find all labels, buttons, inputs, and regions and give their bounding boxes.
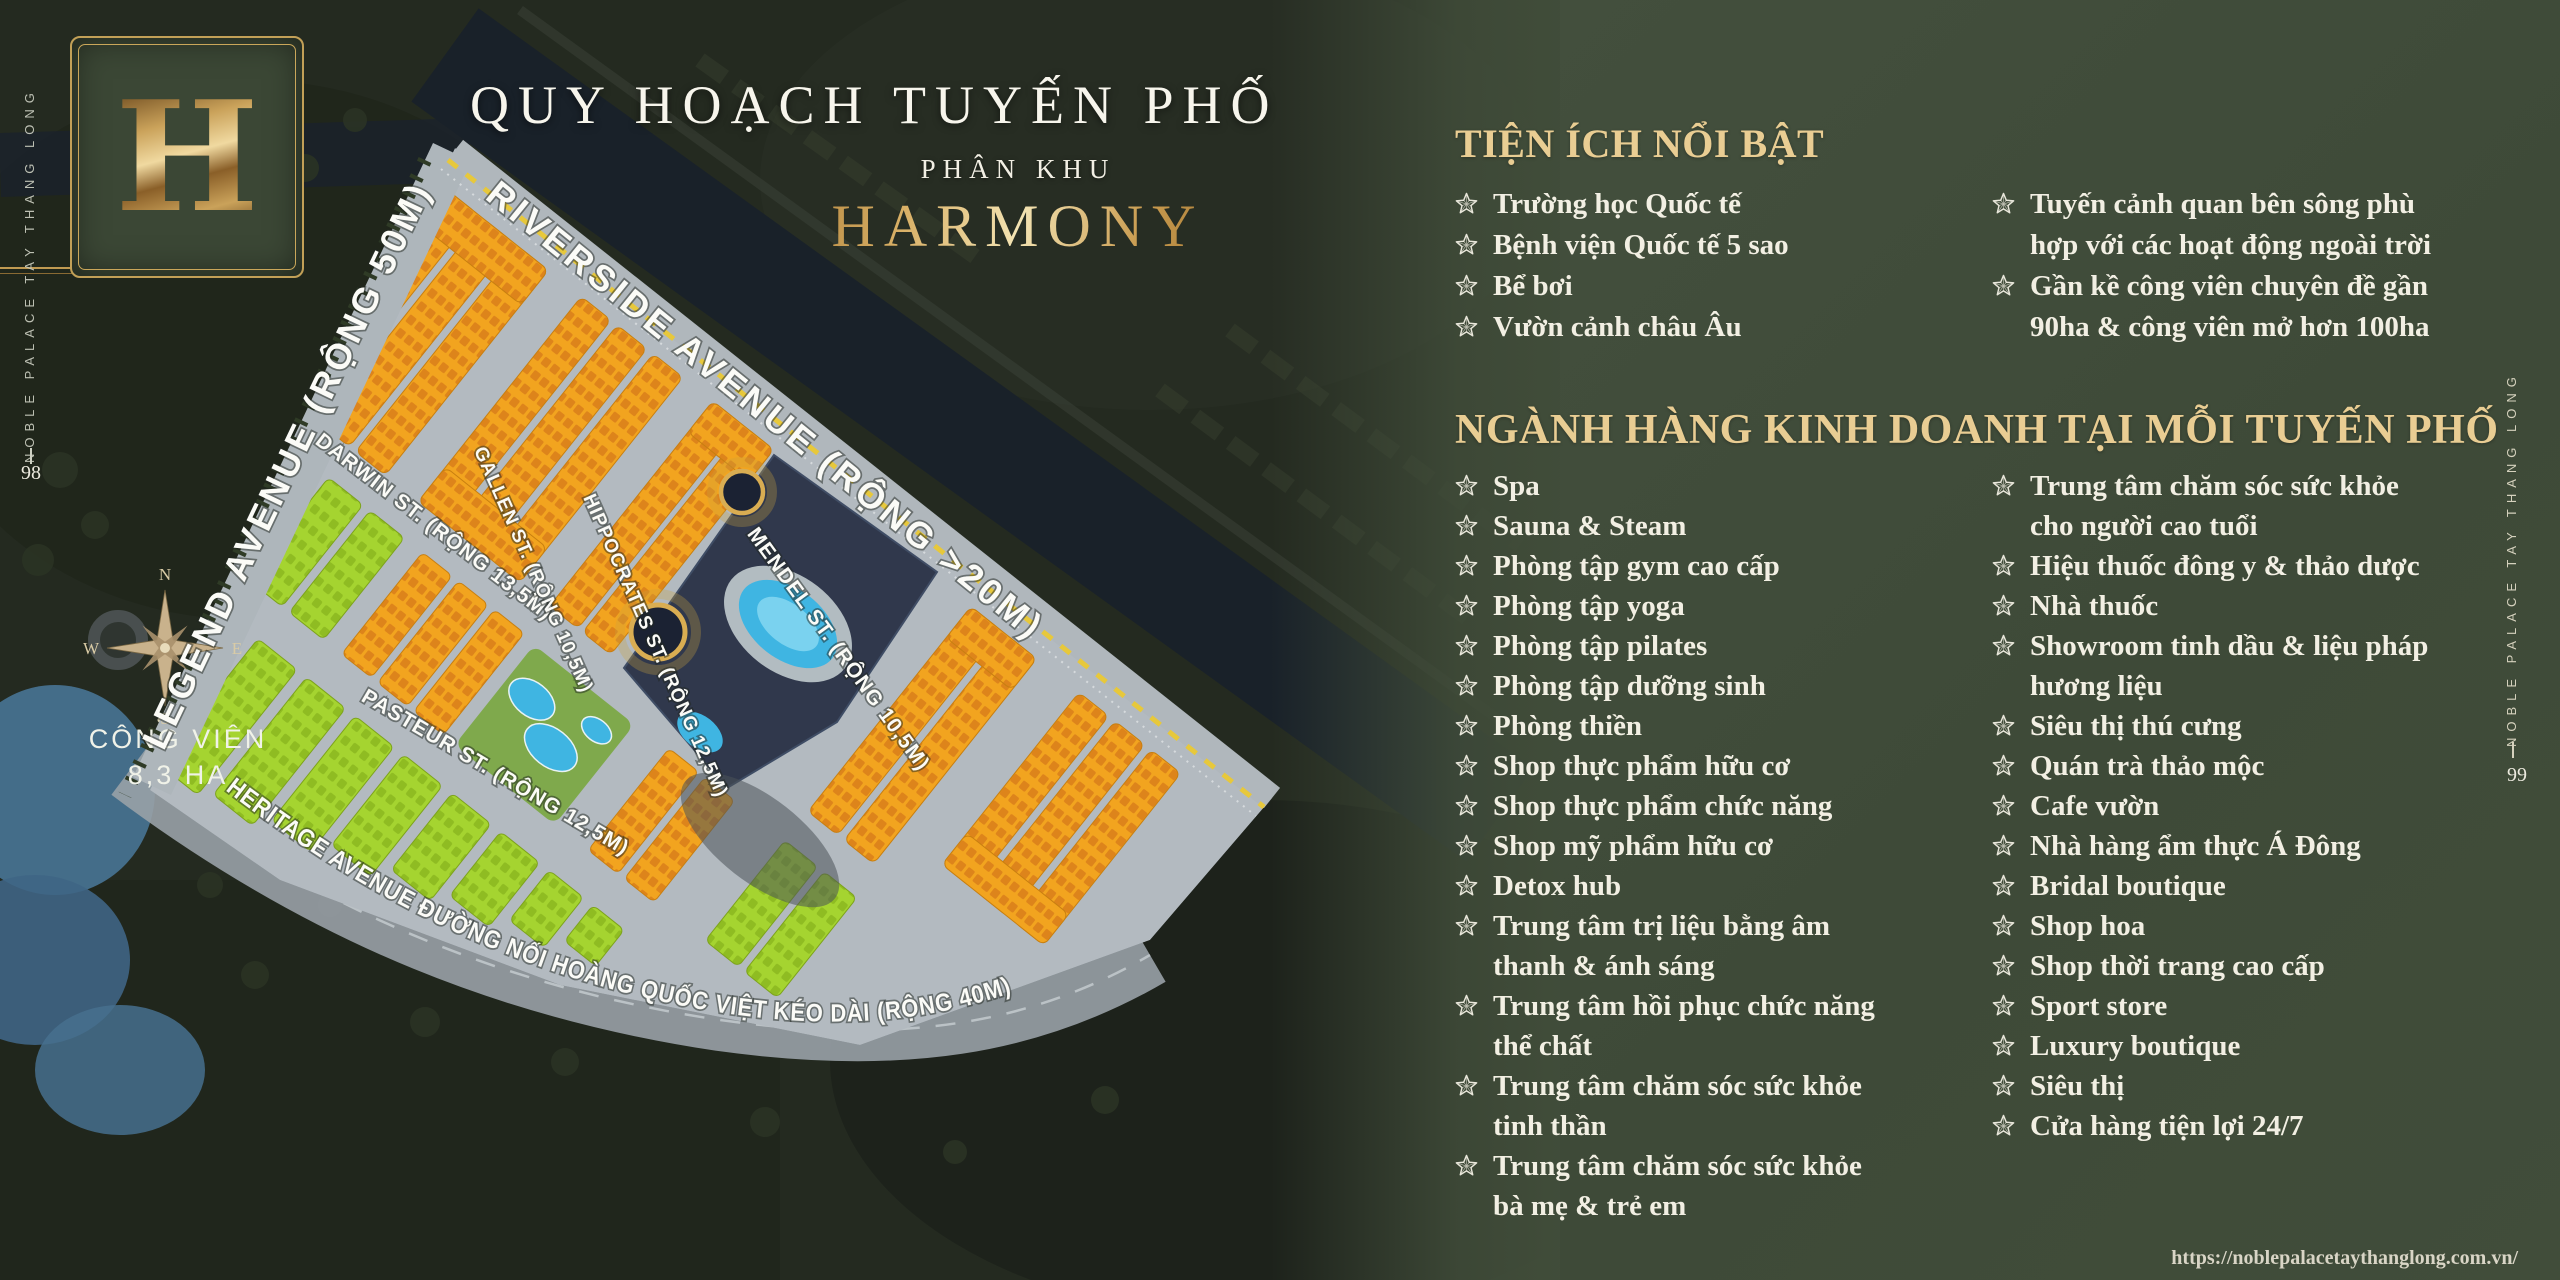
star-icon [1992, 994, 2015, 1017]
star-icon [1455, 834, 1478, 857]
gold-divider-line [0, 267, 74, 274]
page-subtitle: PHÂN KHU [868, 154, 1168, 185]
list-item-label: Trung tâm chăm sóc sức khỏe [1493, 1146, 1862, 1186]
business-list-col1: Spa Sauna & Steam Phòng tập gym cao cấp … [1455, 466, 1992, 1226]
star-icon [1992, 474, 2015, 497]
star-icon [1455, 754, 1478, 777]
list-item-label: Detox hub [1493, 866, 1621, 906]
star-icon [1992, 1074, 2015, 1097]
star-icon [1455, 192, 1478, 215]
list-item: Detox hub [1455, 866, 1992, 906]
star-icon [1992, 914, 2015, 937]
list-item-line: bà mẹ & trẻ em [1493, 1186, 1992, 1226]
star-icon [1455, 794, 1478, 817]
list-item-label: Cafe vườn [2030, 786, 2159, 826]
list-item-line: cho người cao tuổi [2030, 506, 2560, 546]
list-item: Trung tâm chăm sóc sức khỏe cho người ca… [1992, 466, 2560, 546]
list-item-line: thanh & ánh sáng [1493, 946, 1992, 986]
page-title: QUY HOẠCH TUYẾN PHỐ [470, 74, 1230, 136]
list-item-label: Nhà hàng ẩm thực Á Đông [2030, 826, 2361, 866]
list-item-label: Bệnh viện Quốc tế 5 sao [1493, 225, 1789, 266]
list-item-label: Siêu thị thú cưng [2030, 706, 2242, 746]
website-url: https://noblepalacetaythanglong.com.vn/ [2171, 1247, 2518, 1270]
star-icon [1455, 914, 1478, 937]
star-icon [1455, 474, 1478, 497]
list-item: Vườn cảnh châu Âu [1455, 307, 1992, 348]
list-item: Phòng thiền [1455, 706, 1992, 746]
list-item: Nhà hàng ẩm thực Á Đông [1992, 826, 2560, 866]
list-item: Nhà thuốc [1992, 586, 2560, 626]
list-item-label: Cửa hàng tiện lợi 24/7 [2030, 1106, 2304, 1146]
star-icon [1455, 634, 1478, 657]
list-item: Cafe vườn [1992, 786, 2560, 826]
star-icon [1992, 594, 2015, 617]
harmony-logo: H [70, 36, 304, 278]
list-item-label: Shop hoa [2030, 906, 2145, 946]
star-icon [1455, 874, 1478, 897]
star-icon [1992, 1034, 2015, 1057]
star-icon [1992, 834, 2015, 857]
list-item-label: Trung tâm hồi phục chức năng [1493, 986, 1875, 1026]
list-item: Tuyến cảnh quan bên sông phù hợp với các… [1992, 184, 2557, 266]
star-icon [1992, 874, 2015, 897]
logo-letter: H [115, 81, 259, 233]
page-number-right: 99 [2500, 764, 2534, 787]
list-item: Trung tâm hồi phục chức năng thể chất [1455, 986, 1992, 1066]
star-icon [1455, 714, 1478, 737]
star-icon [1992, 754, 2015, 777]
list-item: Bể bơi [1455, 266, 1992, 307]
list-item: Trường học Quốc tế [1455, 184, 1992, 225]
list-item-label: Phòng tập yoga [1493, 586, 1685, 626]
star-icon [1992, 192, 2015, 215]
list-item: Trung tâm chăm sóc sức khỏe tinh thần [1455, 1066, 1992, 1146]
compass-n: N [159, 565, 171, 584]
list-item: Phòng tập pilates [1455, 626, 1992, 666]
rail-tick-right [2512, 742, 2514, 758]
list-item-label: Trung tâm chăm sóc sức khỏe [1493, 1066, 1862, 1106]
list-item-line: thể chất [1493, 1026, 1992, 1066]
star-icon [1455, 1074, 1478, 1097]
list-item: Luxury boutique [1992, 1026, 2560, 1066]
star-icon [1455, 554, 1478, 577]
star-icon [1455, 233, 1478, 256]
star-icon [1992, 1114, 2015, 1137]
star-icon [1455, 514, 1478, 537]
list-item-label: Phòng thiền [1493, 706, 1642, 746]
list-item-label: Shop thực phẩm chức năng [1493, 786, 1832, 826]
star-icon [1455, 315, 1478, 338]
list-item-label: Siêu thị [2030, 1066, 2124, 1106]
list-item: Trung tâm trị liệu bằng âm thanh & ánh s… [1455, 906, 1992, 986]
list-item-label: Phòng tập pilates [1493, 626, 1707, 666]
star-icon [1992, 634, 2015, 657]
list-item-label: Bể bơi [1493, 266, 1573, 307]
list-item: Shop hoa [1992, 906, 2560, 946]
star-icon [1992, 274, 2015, 297]
list-item: Phòng tập gym cao cấp [1455, 546, 1992, 586]
list-item-label: Tuyến cảnh quan bên sông phù [2030, 184, 2415, 225]
list-item: Cửa hàng tiện lợi 24/7 [1992, 1106, 2560, 1146]
amenities-list-col2: Tuyến cảnh quan bên sông phù hợp với các… [1992, 184, 2557, 348]
list-item-label: Quán trà thảo mộc [2030, 746, 2264, 786]
list-item-label: Phòng tập dưỡng sinh [1493, 666, 1766, 706]
logo-frame: H [78, 44, 296, 270]
list-item: Spa [1455, 466, 1992, 506]
compass-w: W [83, 639, 100, 658]
list-item-label: Shop thời trang cao cấp [2030, 946, 2325, 986]
amenities-columns: Trường học Quốc tế Bệnh viện Quốc tế 5 s… [1455, 184, 2557, 348]
list-item-label: Sauna & Steam [1493, 506, 1686, 546]
zone-name: HARMONY [760, 192, 1276, 261]
side-label-left: NOBLE PALACE TAY THANG LONG [22, 268, 37, 463]
list-item: Phòng tập dưỡng sinh [1455, 666, 1992, 706]
list-item-label: Shop mỹ phẩm hữu cơ [1493, 826, 1773, 866]
amenities-header: TIỆN ÍCH NỔI BẬT [1455, 120, 1824, 167]
star-icon [1992, 794, 2015, 817]
list-item-line: hợp với các hoạt động ngoài trời [2030, 225, 2557, 266]
list-item-line: hương liệu [2030, 666, 2560, 706]
list-item: Shop thực phẩm chức năng [1455, 786, 1992, 826]
business-list-col2: Trung tâm chăm sóc sức khỏe cho người ca… [1992, 466, 2560, 1146]
star-icon [1455, 1154, 1478, 1177]
brochure-page: N E S W CÔNG VIÊN 8,3 HA HERITAGE AVENUE… [0, 0, 2560, 1280]
star-icon [1992, 954, 2015, 977]
list-item: Siêu thị thú cưng [1992, 706, 2560, 746]
list-item: Shop thực phẩm hữu cơ [1455, 746, 1992, 786]
list-item: Bridal boutique [1992, 866, 2560, 906]
list-item-line: 90ha & công viên mở hơn 100ha [2030, 307, 2557, 348]
list-item-label: Nhà thuốc [2030, 586, 2158, 626]
list-item-line: tinh thần [1493, 1106, 1992, 1146]
star-icon [1992, 714, 2015, 737]
list-item-label: Hiệu thuốc đông y & thảo dược [2030, 546, 2420, 586]
star-icon [1455, 994, 1478, 1017]
list-item: Showroom tinh dầu & liệu pháp hương liệu [1992, 626, 2560, 706]
star-icon [1455, 274, 1478, 297]
compass-e: E [232, 639, 242, 658]
business-columns: Spa Sauna & Steam Phòng tập gym cao cấp … [1455, 466, 2560, 1226]
list-item-label: Gần kề công viên chuyên đề gần [2030, 266, 2428, 307]
list-item: Shop thời trang cao cấp [1992, 946, 2560, 986]
list-item-label: Bridal boutique [2030, 866, 2226, 906]
star-icon [1455, 594, 1478, 617]
list-item-label: Showroom tinh dầu & liệu pháp [2030, 626, 2428, 666]
list-item: Quán trà thảo mộc [1992, 746, 2560, 786]
list-item: Bệnh viện Quốc tế 5 sao [1455, 225, 1992, 266]
list-item-label: Sport store [2030, 986, 2167, 1026]
list-item-label: Spa [1493, 466, 1540, 506]
side-label-right: NOBLE PALACE TAY THANG LONG [2504, 462, 2519, 747]
list-item-label: Trung tâm chăm sóc sức khỏe [2030, 466, 2399, 506]
list-item: Gần kề công viên chuyên đề gần 90ha & cô… [1992, 266, 2557, 348]
list-item: Phòng tập yoga [1455, 586, 1992, 626]
star-icon [1455, 674, 1478, 697]
list-item: Shop mỹ phẩm hữu cơ [1455, 826, 1992, 866]
list-item-label: Trung tâm trị liệu bằng âm [1493, 906, 1830, 946]
business-header: NGÀNH HÀNG KINH DOANH TẠI MỖI TUYẾN PHỐ [1455, 406, 2499, 454]
list-item: Sport store [1992, 986, 2560, 1026]
list-item-label: Luxury boutique [2030, 1026, 2240, 1066]
amenities-list-col1: Trường học Quốc tế Bệnh viện Quốc tế 5 s… [1455, 184, 1992, 348]
list-item: Siêu thị [1992, 1066, 2560, 1106]
list-item: Trung tâm chăm sóc sức khỏe bà mẹ & trẻ … [1455, 1146, 1992, 1226]
star-icon [1992, 554, 2015, 577]
page-number-left: 98 [16, 462, 46, 485]
list-item-label: Phòng tập gym cao cấp [1493, 546, 1780, 586]
park-label-line2: 8,3 HA [128, 760, 229, 790]
list-item-label: Shop thực phẩm hữu cơ [1493, 746, 1790, 786]
list-item-label: Vườn cảnh châu Âu [1493, 307, 1742, 348]
list-item: Sauna & Steam [1455, 506, 1992, 546]
list-item-label: Trường học Quốc tế [1493, 184, 1741, 225]
list-item: Hiệu thuốc đông y & thảo dược [1992, 546, 2560, 586]
